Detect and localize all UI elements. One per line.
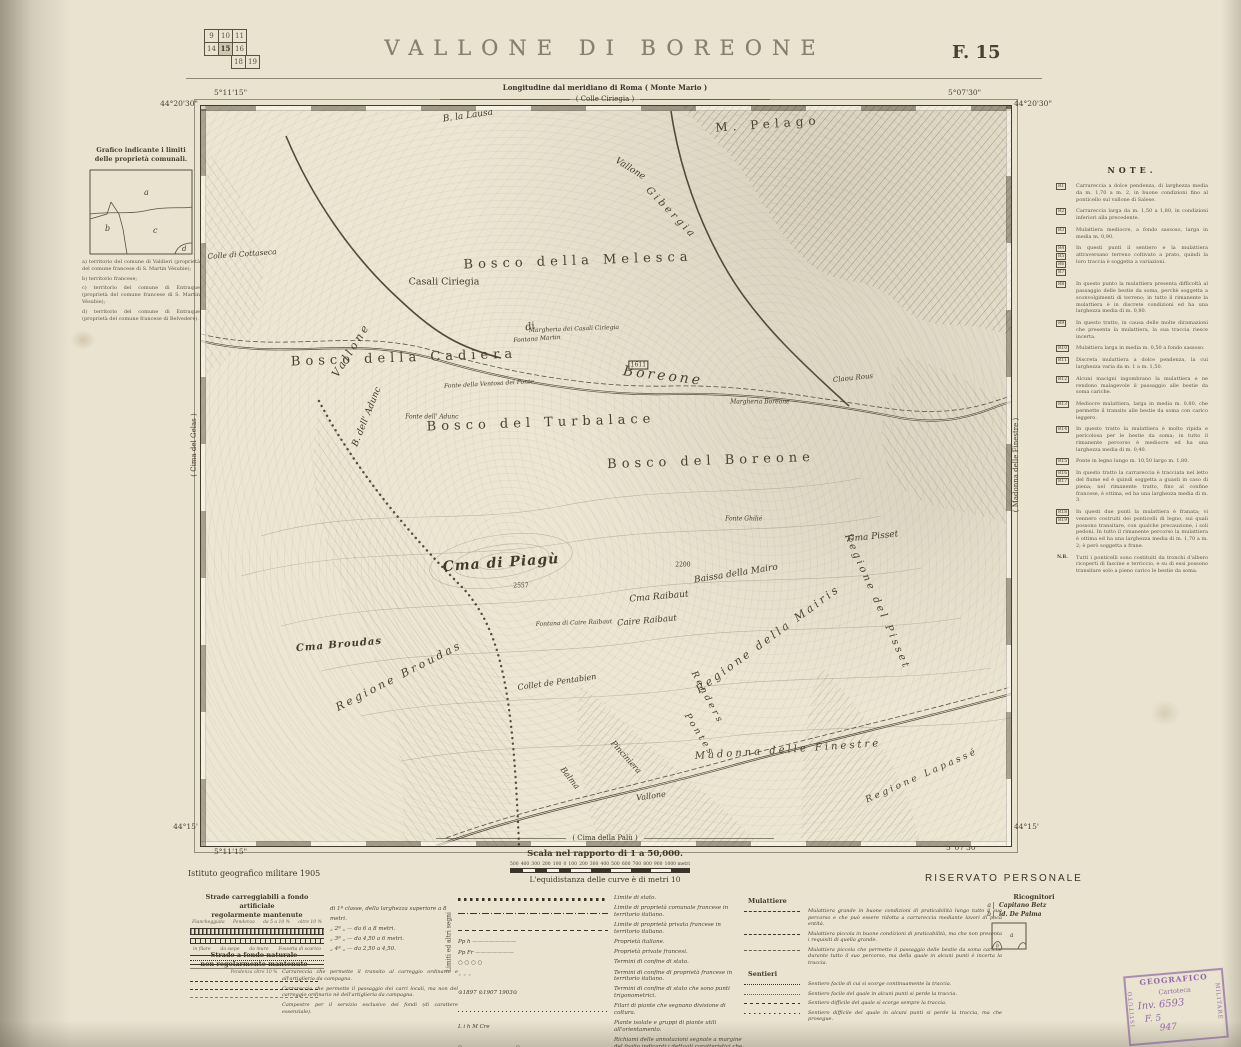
map-label: Fonte Ghilié: [725, 515, 762, 522]
paper-stain: [1150, 700, 1180, 726]
map-label: Caire Raibaut: [616, 613, 677, 628]
road-annotations: FiancheggiataPendenzada 5 a 10 %oltre 10…: [188, 920, 326, 925]
note-refs: R12: [1056, 376, 1072, 396]
corner-coordinate: 5°11'15": [214, 88, 247, 97]
natural-road-text: Campestre per il servizio esclusivo dei …: [282, 1002, 458, 1016]
note-ref-badge: R10: [1056, 345, 1069, 352]
header-rule: [186, 78, 1042, 79]
map-label: 2557: [513, 582, 528, 589]
path-item: Mulattiera grande in buone condizioni di…: [744, 908, 1002, 928]
note-text: In questi punti il sentiero e la mulatti…: [1076, 245, 1208, 276]
scale-tick: 800: [643, 862, 652, 867]
map-label: Gibergia: [643, 185, 698, 241]
surveyor-key: a: [983, 902, 994, 909]
sheet-number: F. 15: [952, 42, 1001, 63]
limit-item: Pp Fr ———————Proprietà private francesi.: [458, 949, 744, 956]
note-entry: N.B.Tutti i ponticelli sono costituiti d…: [1056, 555, 1208, 575]
scale-tick: 600: [622, 862, 631, 867]
scale-tick: 200: [579, 862, 588, 867]
pph-symbol: Pp h ————————: [458, 939, 608, 946]
note-ref-badge: R13: [1056, 401, 1069, 408]
map-label: Regione Lapassé: [864, 746, 980, 805]
map-label: di: [524, 320, 536, 333]
road-class-text: „ 3ª „ — da 4,50 a 6 metri.: [330, 935, 458, 945]
publisher-imprint: Istituto geografico militare 1905: [188, 869, 320, 878]
note-text: In questo tratto la mulattiera è molto r…: [1076, 426, 1208, 453]
scale-tick: 400: [600, 862, 609, 867]
limit-item: Filari di piante che segnano divisione d…: [458, 1003, 744, 1017]
trig-symbol: ⊙1897 ⊙1907 1903⊙: [458, 990, 608, 997]
note-text: Mediocre mulattiera, larga in media m. 0…: [1076, 401, 1208, 421]
limit-text: Filari di piante che segnano divisione d…: [614, 1003, 744, 1017]
note-entry: R8In questo punto la mulattiera presenta…: [1056, 281, 1208, 315]
map-label: Cma di Piagù: [442, 551, 560, 575]
road-annotation: Pendenza: [233, 920, 255, 925]
corner-coordinate: 44°15': [1014, 822, 1039, 831]
road-annotation: oltre 10 %: [298, 920, 322, 925]
limit-text: Piante isolate e gruppi di piante utili …: [614, 1020, 744, 1034]
sen4-symbol: [744, 1013, 800, 1014]
scale-tick: 300: [590, 862, 599, 867]
note-entry: R15Ponte in legno lungo m. 10,50 largo m…: [1056, 458, 1208, 465]
scale-tick: 200: [542, 862, 551, 867]
svg-text:b: b: [105, 224, 110, 233]
path-item: Sentiero difficile del quale si scorge s…: [744, 1000, 1002, 1007]
adjacent-sheet-west: ( Cima del Gelas ): [190, 413, 198, 476]
svg-text:c: c: [153, 226, 158, 235]
map-label: 1611: [629, 361, 648, 370]
note-refs: R9: [1056, 320, 1072, 340]
limit-item: ○ ○ ○ ○Termini di confine di stato.: [458, 959, 744, 966]
scale-tick: 900: [654, 862, 663, 867]
note-ref-badge: R2: [1056, 208, 1066, 215]
path-text: Mulattiera piccola che permette il passa…: [808, 947, 1002, 967]
note-ref-badge: N.B.: [1056, 555, 1069, 560]
road-class2-symbol: [190, 938, 324, 944]
note-refs: R16R17: [1056, 470, 1072, 504]
map-area: B. la LausaM. PelagoValloneGibergiaColle…: [200, 105, 1012, 847]
limit-item: L i h M CrePiante isolate e gruppi di pi…: [458, 1020, 744, 1034]
note-refs: R8: [1056, 281, 1072, 315]
note-text: In questo tratto, in causa delle molte d…: [1076, 320, 1208, 340]
scale-tick: 500: [510, 862, 519, 867]
legend-muletracks-paths: Mulattiere Mulattiera grande in buone co…: [744, 893, 1002, 1026]
scale-tick: 0: [563, 862, 566, 867]
path-item: Sentiero facile del quale in alcuni punt…: [744, 991, 1002, 998]
road-annotation: Fiancheggiata: [192, 920, 225, 925]
map-label: Bosco del Boreone: [607, 450, 815, 472]
note-entry: R13Mediocre mulattiera, larga in media m…: [1056, 401, 1208, 421]
surveyor-name: id. De Palma: [999, 911, 1042, 918]
limit-item: Limite di proprietà comunale francese in…: [458, 905, 744, 919]
inset-legend-item: a) territorio del comune di Valdieri (pr…: [82, 259, 200, 274]
note-refs: R2: [1056, 208, 1072, 222]
natural-road-text: Carrareccia che permette il passaggio de…: [282, 986, 458, 1000]
note-refs: R18R19: [1056, 509, 1072, 550]
limit-text: Termini di confine di stato.: [614, 959, 744, 966]
map-label: Bosco della Cadiera: [290, 346, 517, 369]
limit-text: Limite di proprietà privata francese in …: [614, 922, 744, 936]
inset-sketch: a b c d: [89, 169, 193, 255]
path-item: Sentiero difficile del quale in alcuni p…: [744, 1010, 1002, 1023]
limit-text: Limite di proprietà comunale francese in…: [614, 905, 744, 919]
scale-tick: 700: [633, 862, 642, 867]
corner-coordinate: 44°15': [160, 822, 198, 831]
contour-interval-note: L'equidistanza delle curve è di metri 10: [420, 875, 790, 884]
limit-text: Termini di confine di stato che sono pun…: [614, 986, 744, 1000]
path-text: Sentiero difficile del quale si scorge s…: [808, 1000, 1002, 1007]
limit-item: Limite di proprietà privata francese in …: [458, 922, 744, 936]
path-item: Mulattiera piccola in buone condizioni d…: [744, 931, 1002, 944]
map-label: B. dell' Adunc: [351, 386, 384, 449]
svg-text:b: b: [996, 943, 999, 949]
surveyor-key: b: [983, 911, 994, 918]
note-ref-badge: R15: [1056, 458, 1069, 465]
note-entry: R18R19In questi due punti la mulattiera …: [1056, 509, 1208, 550]
note-refs: R11: [1056, 357, 1072, 371]
note-refs: R15: [1056, 458, 1072, 465]
map-label: Bosco della Melesca: [463, 250, 692, 273]
note-entry: R4R5R6R7In questi punti il sentiero e la…: [1056, 245, 1208, 276]
inset-title-line1: Grafico indicante i limiti: [82, 146, 200, 155]
map-label: Casali Ciriegia: [409, 277, 480, 288]
note-text: Carrareccia larga da m. 1,50 a 1,80, in …: [1076, 208, 1208, 222]
road-class-text: „ 2ª „ — da 6 a 8 metri.: [330, 925, 458, 935]
limit-item: Pp h ————————Proprietà italiane.: [458, 939, 744, 946]
limit-text: Limite di stato.: [614, 895, 744, 902]
map-label: Vallone: [329, 321, 373, 380]
mul1-symbol: [744, 911, 800, 912]
note-text: Discreta mulattiera a dolce pendenza, la…: [1076, 357, 1208, 371]
mul2-symbol: [744, 934, 800, 935]
surveyor-name: Capitano Betz: [999, 902, 1046, 909]
map-label: Colle di Cottaseca: [207, 247, 277, 261]
note-entry: R14In questo tratto la mulattiera è molt…: [1056, 426, 1208, 453]
piante-symbol: L i h M Cre: [458, 1024, 608, 1031]
note-ref-badge: R6: [1056, 261, 1066, 268]
corner-coordinate: 5°11'15": [214, 847, 247, 856]
inset-legend-item: c) territorio del comune di Entraque (pr…: [82, 285, 200, 307]
road-class-text: di 1ª classe, della larghezza superiore …: [330, 905, 458, 925]
note-ref-badge: R12: [1056, 376, 1069, 383]
map-label: Madonna delle Finestre: [695, 738, 882, 762]
road-annotation: da 5 a 10 %: [263, 920, 290, 925]
map-label: Fonte dell' Adunc: [405, 413, 458, 420]
paper-stain: [70, 330, 96, 350]
map-label: Cma Broudas: [295, 635, 382, 653]
note-refs: R4R5R6R7: [1056, 245, 1072, 276]
scale-tick: 1000 metri: [665, 862, 690, 867]
legend-limits-vertical-label: Limiti ed altri segni: [446, 912, 453, 972]
longitude-note: Longitudine dal meridiano di Roma ( Mont…: [200, 83, 1010, 92]
map-label: Vallone: [635, 789, 666, 802]
scale-tick: 400: [521, 862, 530, 867]
corner-coordinate: 5°07'30": [948, 88, 981, 97]
note-ref-badge: R11: [1056, 357, 1069, 364]
note-text: Carrareccia a dolce pendenza, di larghez…: [1076, 183, 1208, 203]
limit-item: ⊙1897 ⊙1907 1903⊙Termini di confine di s…: [458, 986, 744, 1000]
surveyors-block: Ricognitori aCapitano Betzbid. De Palma …: [983, 893, 1085, 950]
map-label: Regione Broudas: [334, 638, 465, 713]
path-text: Mulattiera grande in buone condizioni di…: [808, 908, 1002, 928]
note-text: In questi due punti la mulattiera è fran…: [1076, 509, 1208, 550]
scale-tick: 300: [531, 862, 540, 867]
limit-text: Richiami delle annotazioni segnate a mar…: [614, 1037, 744, 1047]
map-label: M. Pelago: [715, 113, 821, 134]
scale-bar-main: [571, 869, 689, 872]
note-ref-badge: R5: [1056, 253, 1066, 260]
legend-natural-descriptions: Carrareccia che permette il transito al …: [282, 969, 458, 1019]
note-text: Alcuni macigni ingombrano la mulattiera …: [1076, 376, 1208, 396]
note-ref-badge: R9: [1056, 320, 1066, 327]
svg-text:a: a: [1010, 932, 1014, 939]
sen1-symbol: [744, 984, 800, 985]
limit-item: ◻ ————————— ◻Richiami delle annotazioni …: [458, 1037, 744, 1047]
map-label: Fontana Martin: [513, 334, 561, 344]
scale-bar: 5004003002001000100200300400500600700800…: [510, 862, 690, 873]
note-text: Mulattiera mediocre, a fondo sassoso, la…: [1076, 227, 1208, 241]
note-text: Mulattiera larga in media m. 0,50 a fond…: [1076, 345, 1208, 352]
map-label: Claou Rous: [833, 372, 874, 384]
limit-text: Termini di confine di proprietà francese…: [614, 970, 744, 984]
note-entry: R2Carrareccia larga da m. 1,50 a 1,80, i…: [1056, 208, 1208, 222]
map-label: Bosco del Turbalace: [427, 411, 656, 434]
map-label: B. la Lausa: [443, 108, 494, 125]
cippi-symbol: ○ ○ ○ ○: [458, 959, 608, 966]
notes-heading: NOTE.: [1056, 165, 1208, 175]
limit-text: Proprietà italiane.: [614, 939, 744, 946]
natural-road-text: Carrareccia che permette il transito al …: [282, 969, 458, 983]
note-ref-badge: R19: [1056, 517, 1069, 524]
note-text: Ponte in legno lungo m. 10,50 largo m. 1…: [1076, 458, 1208, 465]
sen2-symbol: [744, 994, 800, 995]
inset-legend-item: d) territorio del comune di Entraque (pr…: [82, 309, 200, 324]
filari-symbol: [458, 1011, 608, 1012]
note-refs: R14: [1056, 426, 1072, 453]
corner-coordinate: 44°20'30": [1014, 99, 1052, 108]
note-ref-badge: R14: [1056, 426, 1069, 433]
note-ref-badge: R7: [1056, 269, 1066, 276]
scale-tick: 100: [553, 862, 562, 867]
note-refs: R3: [1056, 227, 1072, 241]
note-ref-badge: R3: [1056, 227, 1066, 234]
adjacent-sheet-south: ( Cima della Palù ): [200, 834, 1010, 842]
scale-caption: Scala nel rapporto di 1 a 50,000.: [420, 849, 790, 859]
note-refs: R1: [1056, 183, 1072, 203]
map-label: Fontana di Caire Raibaut: [535, 618, 612, 628]
road-class-text: „ 4ª „ — da 2,50 a 4,50.: [330, 945, 458, 955]
paper-edge-shadow-right: [1221, 0, 1241, 1047]
map-title: VALLONE DI BOREONE: [200, 36, 1010, 60]
map-label: Regione del Pisset: [842, 532, 912, 671]
path-text: Sentiero facile di cui si scorge continu…: [808, 981, 1002, 988]
comunale-symbol: [458, 913, 608, 914]
limit-item: Limite di stato.: [458, 895, 744, 902]
reserved-stamp: RISERVATO PERSONALE: [925, 873, 1083, 884]
path-item: Sentiero facile di cui si scorge continu…: [744, 981, 1002, 988]
inset-legend-item: b) territorio francese;: [82, 276, 200, 283]
path-text: Sentiero facile del quale in alcuni punt…: [808, 991, 1002, 998]
note-ref-badge: R16: [1056, 470, 1069, 477]
map-label: 2200: [675, 561, 690, 568]
inset-title-line2: delle proprietà comunali.: [82, 155, 200, 164]
note-ref-badge: R1: [1056, 183, 1066, 190]
state-symbol: [458, 898, 608, 901]
legend-road-classes: di 1ª classe, della larghezza superiore …: [330, 905, 458, 954]
limit-text: Proprietà private francesi.: [614, 949, 744, 956]
note-entry: R10Mulattiera larga in media m. 0,50 a f…: [1056, 345, 1208, 352]
legend-limits: Limite di stato.Limite di proprietà comu…: [458, 895, 744, 1047]
note-ref-badge: R17: [1056, 478, 1069, 485]
scale-tick: 100: [568, 862, 577, 867]
note-text: In questo tratto la carrareccia è tracci…: [1076, 470, 1208, 504]
ppfr-symbol: Pp Fr ———————: [458, 949, 608, 956]
note-ref-badge: R8: [1056, 281, 1066, 288]
note-refs: R13: [1056, 401, 1072, 421]
library-stamp: GEOGRAFICO ISTITUTO MILITARE Cartoteca I…: [1123, 968, 1229, 1046]
map-label: Margheria Boreone: [730, 399, 790, 406]
property-limits-inset: Grafico indicante i limiti delle proprie…: [82, 146, 200, 325]
note-refs: N.B.: [1056, 555, 1072, 575]
path-text: Sentiero difficile del quale in alcuni p…: [808, 1010, 1002, 1023]
map-label: Margheria dei Casali Ciriegia: [528, 324, 618, 334]
map-label: Pinciniera: [609, 739, 643, 776]
svg-text:a: a: [144, 188, 149, 197]
map-label: Balma: [558, 765, 581, 791]
svg-text:d: d: [182, 245, 187, 253]
map-label: Regione della Mairis: [693, 582, 843, 696]
note-ref-badge: R18: [1056, 509, 1069, 516]
paper-edge-shadow-left: [0, 0, 72, 1047]
map-sheet-scan: 910111415161819 VALLONE DI BOREONE F. 15…: [0, 0, 1241, 1047]
note-entry: R1Carrareccia a dolce pendenza, di largh…: [1056, 183, 1208, 203]
surveyor-row: aCapitano Betz: [983, 902, 1085, 909]
note-entry: R11Discreta mulattiera a dolce pendenza,…: [1056, 357, 1208, 371]
limit-item: ◦ ◦ ◦Termini di confine di proprietà fra…: [458, 970, 744, 984]
sen3-symbol: [744, 1003, 800, 1004]
note-text: In questo punto la mulattiera presenta d…: [1076, 281, 1208, 315]
adjacent-sheet-east: ( Madonna delle Finestre ): [1012, 418, 1020, 512]
note-entry: R16R17In questo tratto la carrareccia è …: [1056, 470, 1208, 504]
road-class1-symbol: [190, 928, 324, 935]
map-label: Collet de Pentabien: [517, 672, 597, 692]
inset-legend: a) territorio del comune di Valdieri (pr…: [82, 259, 200, 323]
note-text: Tutti i ponticelli sono costituiti da tr…: [1076, 555, 1208, 575]
scale-tick: 500: [611, 862, 620, 867]
note-entry: R9In questo tratto, in causa delle molte…: [1056, 320, 1208, 340]
scale-tick-labels: 5004003002001000100200300400500600700800…: [510, 862, 690, 867]
notes-column: NOTE. R1Carrareccia a dolce pendenza, di…: [1056, 165, 1208, 580]
cippifr-symbol: ◦ ◦ ◦: [458, 973, 608, 980]
adjacent-sheet-north: ( Colle Ciriegia ): [200, 95, 1010, 103]
note-entry: R3Mulattiera mediocre, a fondo sassoso, …: [1056, 227, 1208, 241]
map-label: Fonte della Ventosa del Ponte: [443, 378, 533, 390]
map-labels-layer: B. la LausaM. PelagoValloneGibergiaColle…: [201, 106, 1011, 846]
mul3-symbol: [744, 950, 800, 951]
path-item: Mulattiera piccola che permette il passa…: [744, 947, 1002, 967]
note-refs: R10: [1056, 345, 1072, 352]
map-label: Vallone: [614, 156, 648, 182]
map-label: Cma Raibaut: [629, 589, 689, 604]
note-ref-badge: R4: [1056, 245, 1066, 252]
notes-entries: R1Carrareccia a dolce pendenza, di largh…: [1056, 183, 1208, 575]
surveyor-row: bid. De Palma: [983, 911, 1085, 918]
note-entry: R12Alcuni macigni ingombrano la mulattie…: [1056, 376, 1208, 396]
map-label: Baissa della Mairo: [693, 562, 778, 585]
scale-bar-subdivided: [511, 869, 571, 872]
surveyors-sketch: a b: [991, 922, 1027, 950]
path-text: Mulattiera piccola in buone condizioni d…: [808, 931, 1002, 944]
privata-symbol: [458, 930, 608, 931]
corner-coordinate: 44°20'30": [150, 99, 198, 108]
